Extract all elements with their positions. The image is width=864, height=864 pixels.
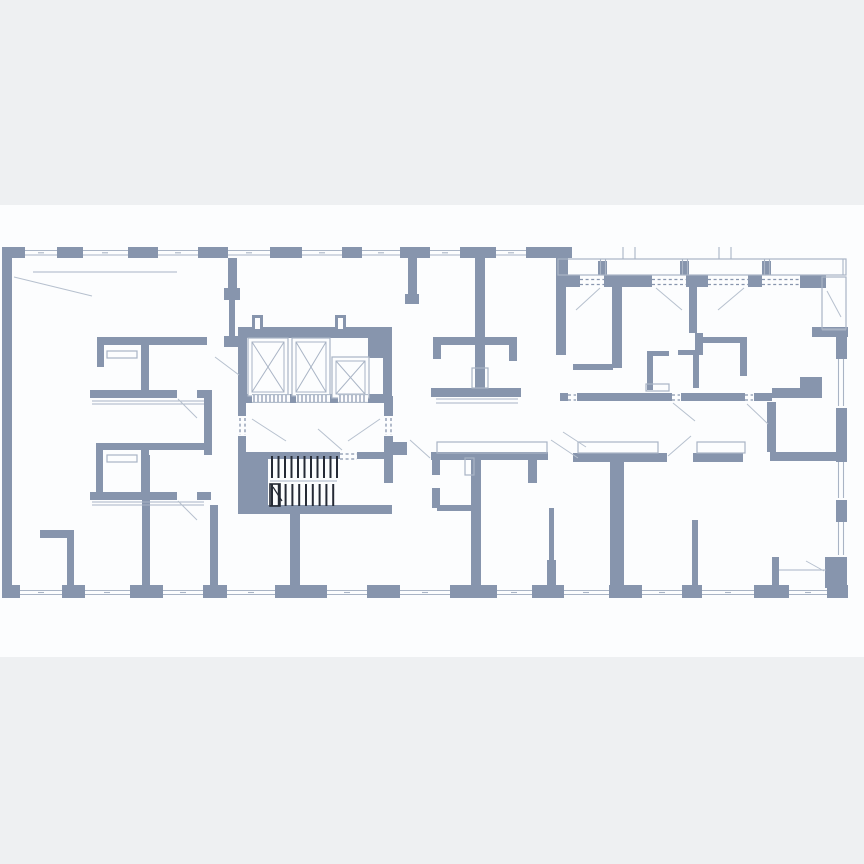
elevator-sills-layer — [252, 394, 368, 403]
floorplan-canvas — [0, 0, 864, 864]
floor-plan-svg — [0, 0, 864, 864]
background-bands — [0, 0, 864, 864]
